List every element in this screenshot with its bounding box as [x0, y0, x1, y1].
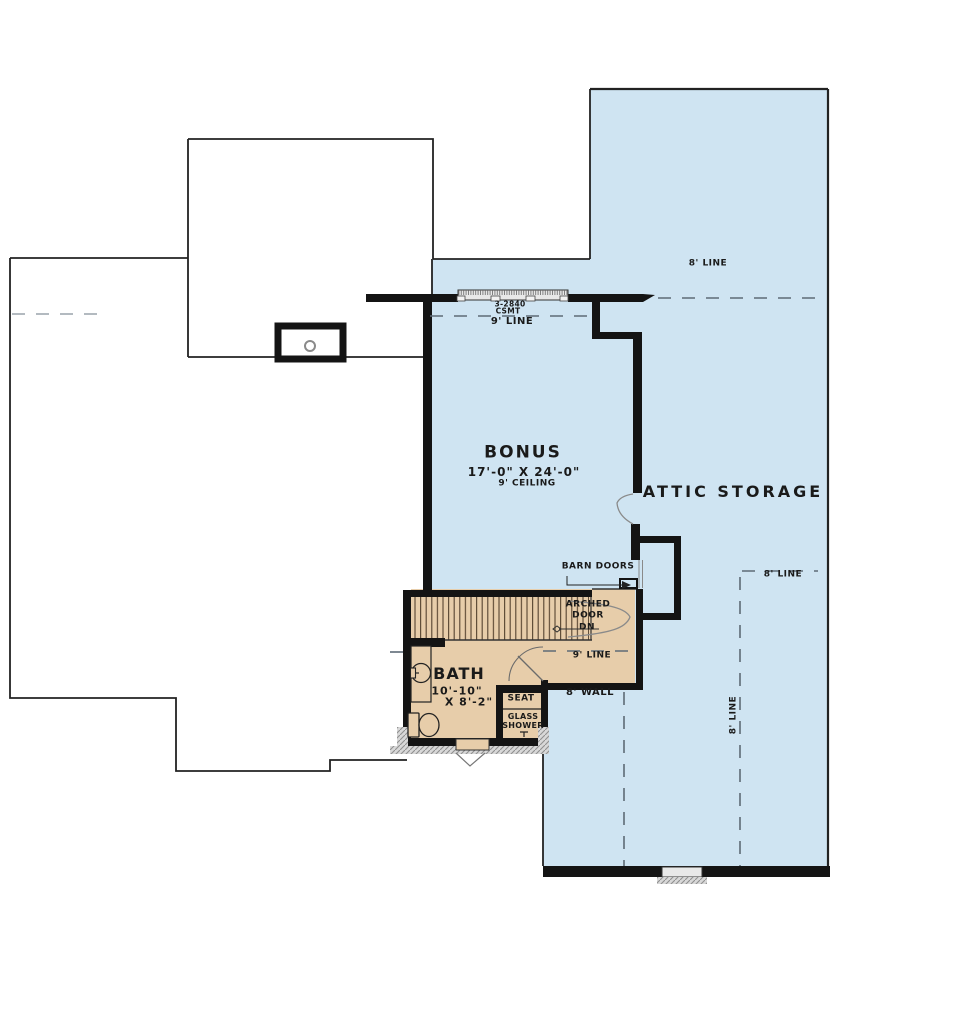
roof-outline-left-steps — [10, 258, 407, 771]
wall-seat-top — [496, 685, 543, 693]
label-8-line-right: 8' LINE — [764, 571, 802, 580]
window-mullion — [560, 296, 568, 301]
chimney — [278, 326, 343, 359]
shower-window — [538, 727, 549, 751]
toilet-bowl — [419, 714, 439, 737]
label-8-line-top: 8' LINE — [689, 260, 727, 269]
label-glass: GLASS — [508, 713, 539, 721]
faucet — [411, 668, 416, 678]
label-bonus-room: BONUS — [484, 445, 562, 462]
window-mullion — [457, 296, 465, 301]
wall-bonus-left — [423, 294, 432, 597]
label-bonus-dims: 17'-0" X 24'-0" — [468, 466, 581, 478]
label-9-line-top: 9' LINE — [491, 317, 533, 327]
wall-closet-bottom — [643, 613, 681, 620]
label-barn-doors: BARN DOORS — [562, 563, 635, 572]
label-9-line-mid: 9' LINE — [573, 652, 611, 661]
attic-lower-left-area — [543, 690, 590, 868]
bottom-window — [662, 867, 702, 877]
chimney-box — [278, 326, 343, 359]
wall-closet-top — [631, 536, 681, 543]
window-mullion — [526, 296, 535, 301]
label-arched-door-1: ARCHED — [566, 601, 611, 610]
bottom-window-sill — [657, 877, 707, 884]
wall-stair-top — [403, 590, 592, 597]
floor-plan-page: 8' LINE 3-2840 CSMT 9' LINE BONUS 17'-0"… — [0, 0, 970, 1016]
toilet-tank — [408, 713, 419, 737]
label-arched-door-3: DN — [579, 624, 595, 633]
label-shower: SHOWER — [502, 722, 544, 730]
label-8-wall: 8' WALL — [566, 688, 614, 698]
stair-treads — [412, 597, 589, 640]
wall-shower-left — [496, 685, 503, 739]
attic-main-area — [590, 90, 829, 868]
label-8-line-vertical: 8' LINE — [730, 696, 739, 734]
bath-left-window — [397, 727, 408, 750]
wall-top-right — [568, 294, 643, 302]
wall-hall-right — [636, 589, 643, 690]
wall-closet-right — [674, 536, 681, 620]
label-attic-storage: ATTIC STORAGE — [643, 484, 823, 500]
bath-bottom-window — [456, 739, 489, 750]
label-arched-door-2: DOOR — [572, 612, 604, 621]
roof-outline-top-rect — [188, 139, 433, 259]
label-seat: SEAT — [507, 695, 534, 704]
label-bonus-ceiling: 9' CEILING — [498, 480, 555, 489]
vent-mark — [456, 753, 485, 766]
casement-window-hatch — [458, 290, 568, 295]
label-bath: BATH — [433, 666, 485, 682]
label-window-type: CSMT — [496, 307, 521, 315]
label-bath-depth: X 8'-2" — [445, 697, 493, 708]
floor-plan-drawing — [0, 0, 970, 1016]
wall-bonus-right — [633, 332, 642, 493]
